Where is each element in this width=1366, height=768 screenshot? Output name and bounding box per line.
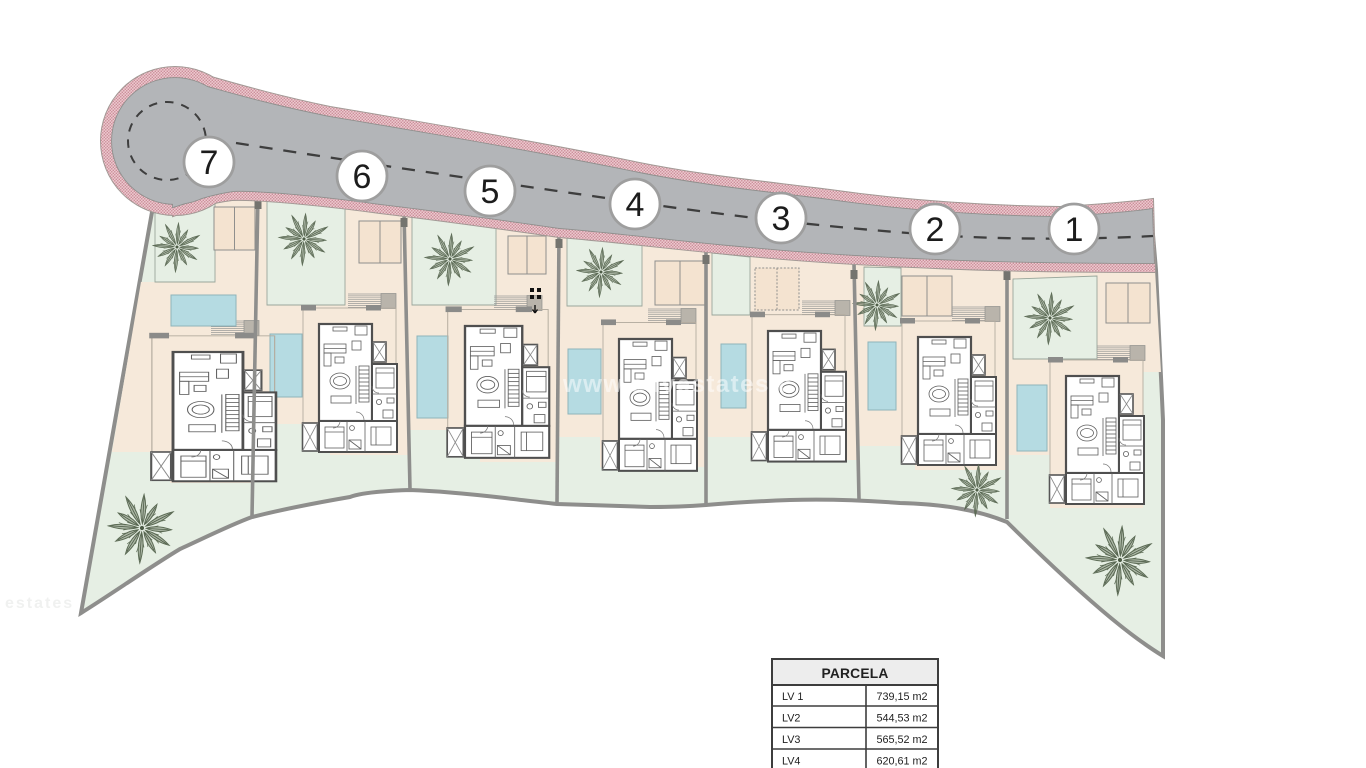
- svg-text:www.anvestates.c: www.anvestates.c: [562, 371, 793, 398]
- svg-text:739,15 m2: 739,15 m2: [876, 691, 927, 703]
- svg-text:LV4: LV4: [782, 756, 800, 768]
- svg-text:LV2: LV2: [782, 713, 800, 725]
- svg-text:544,53 m2: 544,53 m2: [876, 713, 927, 725]
- svg-text:3: 3: [772, 200, 791, 238]
- svg-text:6: 6: [353, 158, 372, 196]
- svg-text:565,52 m2: 565,52 m2: [876, 734, 927, 746]
- svg-text:5: 5: [481, 173, 500, 211]
- svg-text:2: 2: [926, 211, 945, 249]
- svg-text:LV 1: LV 1: [782, 691, 803, 703]
- svg-text:7: 7: [200, 144, 219, 182]
- svg-text:LV3: LV3: [782, 734, 800, 746]
- svg-text:PARCELA: PARCELA: [821, 666, 888, 681]
- svg-text:estates: estates: [5, 595, 74, 612]
- svg-text:4: 4: [626, 186, 645, 224]
- svg-text:1: 1: [1065, 211, 1084, 249]
- svg-text:620,61 m2: 620,61 m2: [876, 756, 927, 768]
